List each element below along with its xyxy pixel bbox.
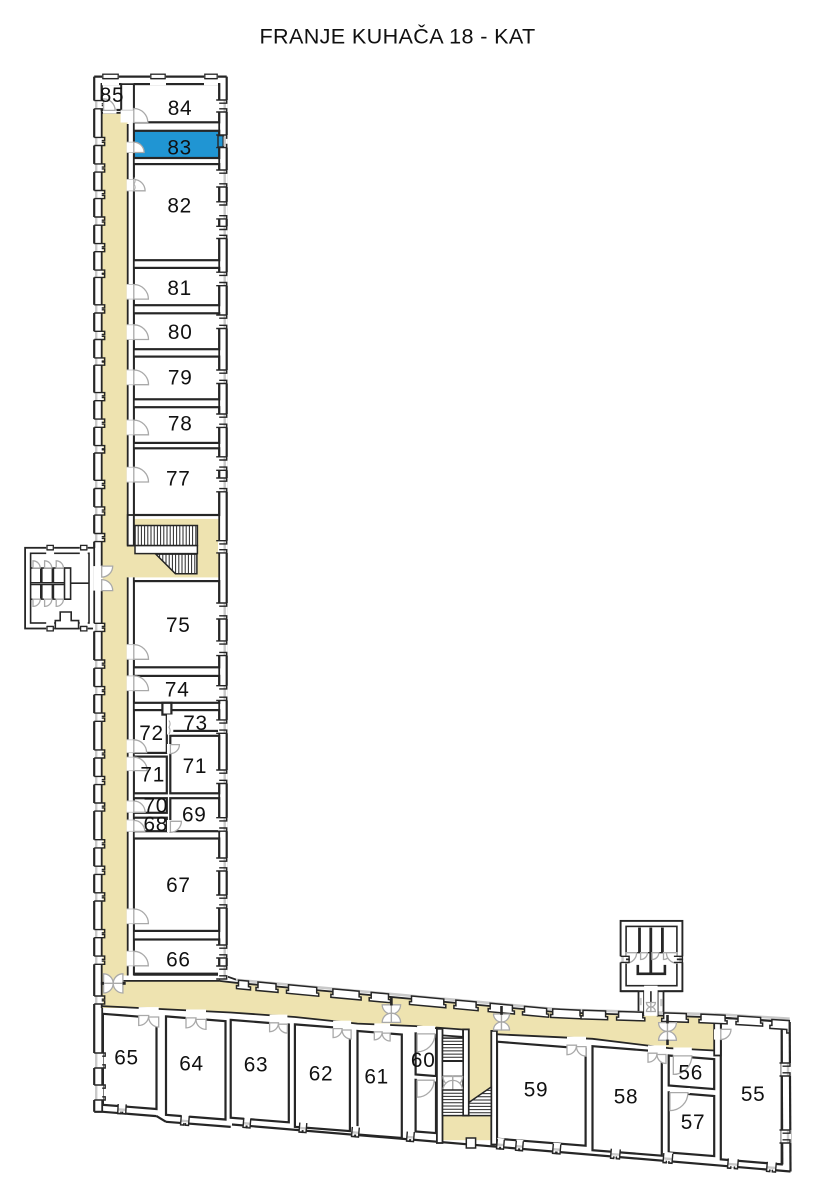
svg-text:56: 56 [678,1061,703,1084]
svg-text:77: 77 [166,467,191,490]
svg-text:63: 63 [244,1054,269,1077]
svg-text:65: 65 [114,1047,139,1070]
svg-text:68: 68 [144,813,169,836]
svg-text:62: 62 [309,1063,334,1086]
svg-text:72: 72 [139,722,164,745]
svg-text:60: 60 [411,1049,436,1072]
svg-text:67: 67 [166,874,191,897]
svg-text:81: 81 [167,277,192,300]
svg-text:59: 59 [524,1079,549,1102]
svg-text:75: 75 [166,614,191,637]
svg-text:73: 73 [183,712,208,735]
svg-text:71: 71 [140,763,165,786]
svg-text:71: 71 [183,755,208,778]
svg-text:FRANJE KUHAČA 18 - KAT: FRANJE KUHAČA 18 - KAT [259,23,535,48]
svg-text:83: 83 [167,137,192,160]
svg-text:64: 64 [179,1053,204,1076]
svg-text:79: 79 [168,367,193,390]
svg-text:58: 58 [614,1086,639,1109]
svg-text:74: 74 [165,679,190,702]
svg-text:80: 80 [168,321,193,344]
svg-text:85: 85 [100,84,125,107]
svg-text:84: 84 [168,97,193,120]
svg-text:66: 66 [166,949,191,972]
svg-text:78: 78 [168,412,193,435]
svg-text:55: 55 [741,1083,766,1106]
svg-text:82: 82 [167,195,192,218]
svg-text:57: 57 [681,1111,706,1134]
svg-text:69: 69 [182,804,207,827]
svg-text:61: 61 [364,1066,389,1089]
